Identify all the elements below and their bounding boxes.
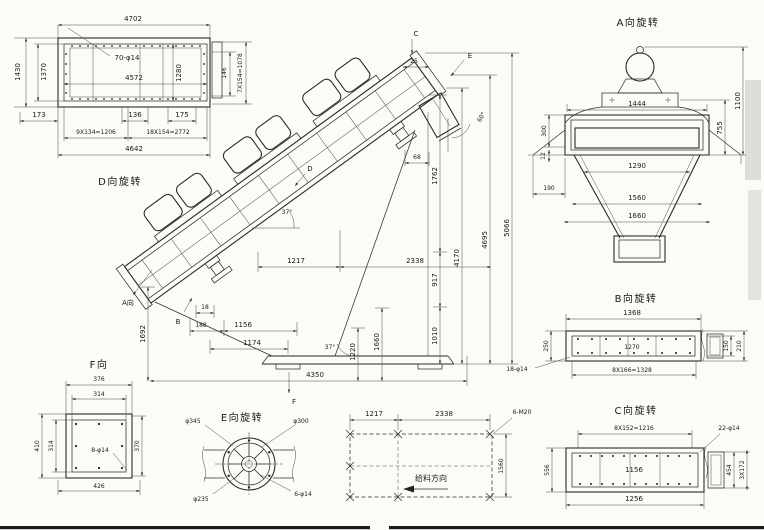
- c-dim-right-inner: 454: [726, 464, 733, 476]
- main-view: A向 B C D E F 37° 37° 60° 25 68 1217 2338: [98, 26, 519, 406]
- spring-mount-right: [386, 119, 416, 149]
- d-dim-right-pitch: 7X154=1078: [237, 53, 244, 93]
- marker-b-label: B: [176, 318, 181, 326]
- b-dim-pitch: 8X166=1328: [612, 367, 652, 374]
- c-holes-note: 22-φ14: [718, 425, 740, 432]
- spring-mount-left: [202, 253, 232, 283]
- a-view-geometry: [528, 47, 748, 263]
- d-dim-right-inner: 1280: [175, 64, 183, 82]
- engineering-drawing-canvas: 4702 70-φ14 4572 1430 1370 1280 146 7X15…: [0, 0, 764, 530]
- c-dim-pitch: 8X152=1216: [614, 425, 654, 432]
- b-view: B向旋转 1368 1270 250 150 210: [506, 292, 748, 379]
- f-dim-top: 376: [93, 376, 105, 383]
- f-view-dimensions: [42, 385, 142, 491]
- c-view-title: C向旋转: [615, 404, 658, 417]
- d-dim-pitch-small: 9X134=1206: [76, 129, 116, 136]
- d-view: 4702 70-φ14 4572 1430 1370 1280 146 7X15…: [14, 15, 252, 188]
- dim-4350-label: 4350: [306, 371, 324, 379]
- dim-188-label: 188: [195, 322, 207, 329]
- f-view-geometry: [38, 381, 146, 495]
- exciter-unit-2: [218, 111, 301, 184]
- dim-1692-label: 1692: [139, 325, 147, 343]
- dim-18-label: 18: [201, 304, 209, 311]
- angle-body-label: 37°: [282, 209, 293, 216]
- d-dim-175: 175: [175, 111, 188, 119]
- c-dim-bottom: 1256: [625, 495, 643, 503]
- c-dim-inner: 1156: [625, 466, 643, 474]
- plan-dim-depth: 1560: [498, 458, 505, 473]
- dim-25-label: 25: [410, 58, 418, 65]
- machine-body: [98, 26, 457, 325]
- d-dim-136: 136: [128, 111, 142, 119]
- c-view-dimensions: [552, 434, 747, 505]
- plan-view: 1217 2338 6-M20 1560 给料方向: [346, 409, 532, 501]
- plan-view-dimensions: [350, 420, 506, 497]
- dim-2338-label: 2338: [406, 257, 424, 265]
- d-dim-left-inner: 1370: [40, 63, 48, 81]
- discharge-chute: [419, 93, 470, 152]
- e-view-title: E向旋转: [221, 411, 263, 424]
- e-view-geometry: [203, 425, 296, 496]
- c-dim-right-pitch: 3X172: [739, 460, 746, 480]
- b-dim-left: 250: [543, 340, 550, 352]
- a-dim-1444: 1444: [628, 100, 646, 108]
- d-view-title: D向旋转: [98, 175, 142, 188]
- a-dim-1100: 1100: [734, 92, 742, 110]
- e-view: E向旋转 φ345 φ300 φ235 6-φ14: [185, 411, 312, 503]
- b-holes-note: 18-φ14: [506, 366, 528, 373]
- marker-d-label: D: [307, 165, 312, 173]
- a-dim-1660: 1660: [628, 212, 646, 220]
- exciter-unit-1: [139, 169, 222, 242]
- anchor-bolt-marks: [346, 430, 494, 501]
- f-dim-left-inner: 314: [48, 440, 55, 452]
- dim-68-label: 68: [413, 154, 421, 161]
- e-dim-d300: φ300: [293, 418, 309, 425]
- dim-1156-label: 1156: [234, 321, 252, 329]
- b-dim-inner: 1270: [624, 344, 639, 351]
- d-dim-pitch-large: 18X154=2772: [146, 129, 190, 136]
- a-dim-1290: 1290: [628, 162, 646, 170]
- drawing-sheet: 4702 70-φ14 4572 1430 1370 1280 146 7X15…: [0, 0, 764, 530]
- a-dim-1560: 1560: [628, 194, 646, 202]
- plan-bolts-note: 6-M20: [513, 409, 532, 416]
- f-view: F向 376 314 410 314 370 8-φ14: [34, 358, 146, 495]
- e-holes-note: 6-φ14: [294, 491, 312, 498]
- f-view-title: F向: [90, 358, 109, 371]
- plan-dim-span2: 2338: [435, 410, 453, 418]
- b-dim-right-outer: 210: [736, 340, 743, 352]
- b-dim-top: 1368: [623, 309, 641, 317]
- d-dim-inner-width: 4572: [125, 74, 143, 82]
- c-view-geometry: [546, 430, 750, 509]
- marker-c-label: C: [414, 30, 419, 38]
- a-dim-755: 755: [716, 121, 724, 134]
- f-holes-note: 8-φ14: [91, 447, 109, 454]
- feed-direction-arrow: [403, 486, 448, 493]
- d-dim-total: 4642: [125, 145, 143, 153]
- a-view-title: A向旋转: [617, 16, 660, 29]
- dim-917-label: 917: [431, 273, 439, 286]
- dim-1217-label: 1217: [287, 257, 305, 265]
- f-dim-left-outer: 410: [34, 440, 41, 452]
- marker-a-label: A向: [122, 298, 134, 307]
- angle-chute-label: 60°: [476, 111, 487, 124]
- plan-view-geometry: [346, 414, 512, 501]
- dim-4695-label: 4695: [481, 231, 489, 249]
- dim-1220-label: 1220: [349, 343, 357, 361]
- dim-1762-label: 1762: [431, 167, 439, 185]
- d-holes-note: 70-φ14: [115, 54, 141, 62]
- dim-1660-label: 1660: [373, 333, 381, 351]
- b-view-title: B向旋转: [615, 292, 658, 305]
- marker-f-label: F: [292, 398, 296, 406]
- plan-feed-direction-label: 给料方向: [415, 473, 447, 483]
- exciter-unit-3: [297, 53, 380, 126]
- f-dim-bottom: 426: [93, 483, 105, 490]
- b-dim-right-inner: 150: [723, 340, 730, 352]
- f-dim-top-inner: 314: [93, 391, 105, 398]
- a-view: A向旋转: [528, 16, 748, 262]
- e-dim-d235: φ235: [193, 496, 209, 503]
- c-view: C向旋转 8X152=1216 22-φ14 1156 556 45: [544, 404, 750, 509]
- a-dim-300: 300: [541, 125, 548, 137]
- angle-support-label: 37°: [325, 344, 336, 351]
- dim-1174-label: 1174: [243, 339, 261, 347]
- c-dim-left: 556: [544, 464, 551, 476]
- d-dim-173: 173: [32, 111, 45, 119]
- dim-4170-label: 4170: [453, 249, 461, 267]
- view-direction-markers: A向 B C D E F: [122, 30, 472, 406]
- a-dim-12: 12: [540, 152, 547, 160]
- d-dim-right-margin: 146: [221, 67, 228, 79]
- d-dim-left-outer: 1430: [14, 63, 22, 81]
- plan-dim-span1: 1217: [365, 410, 383, 418]
- d-dim-top: 4702: [124, 15, 142, 23]
- dim-1010-label: 1010: [431, 327, 439, 345]
- e-dim-d345: φ345: [185, 418, 201, 425]
- f-dim-right: 370: [134, 440, 141, 452]
- dim-5066-label: 5066: [503, 219, 511, 237]
- a-dim-190: 190: [543, 185, 555, 192]
